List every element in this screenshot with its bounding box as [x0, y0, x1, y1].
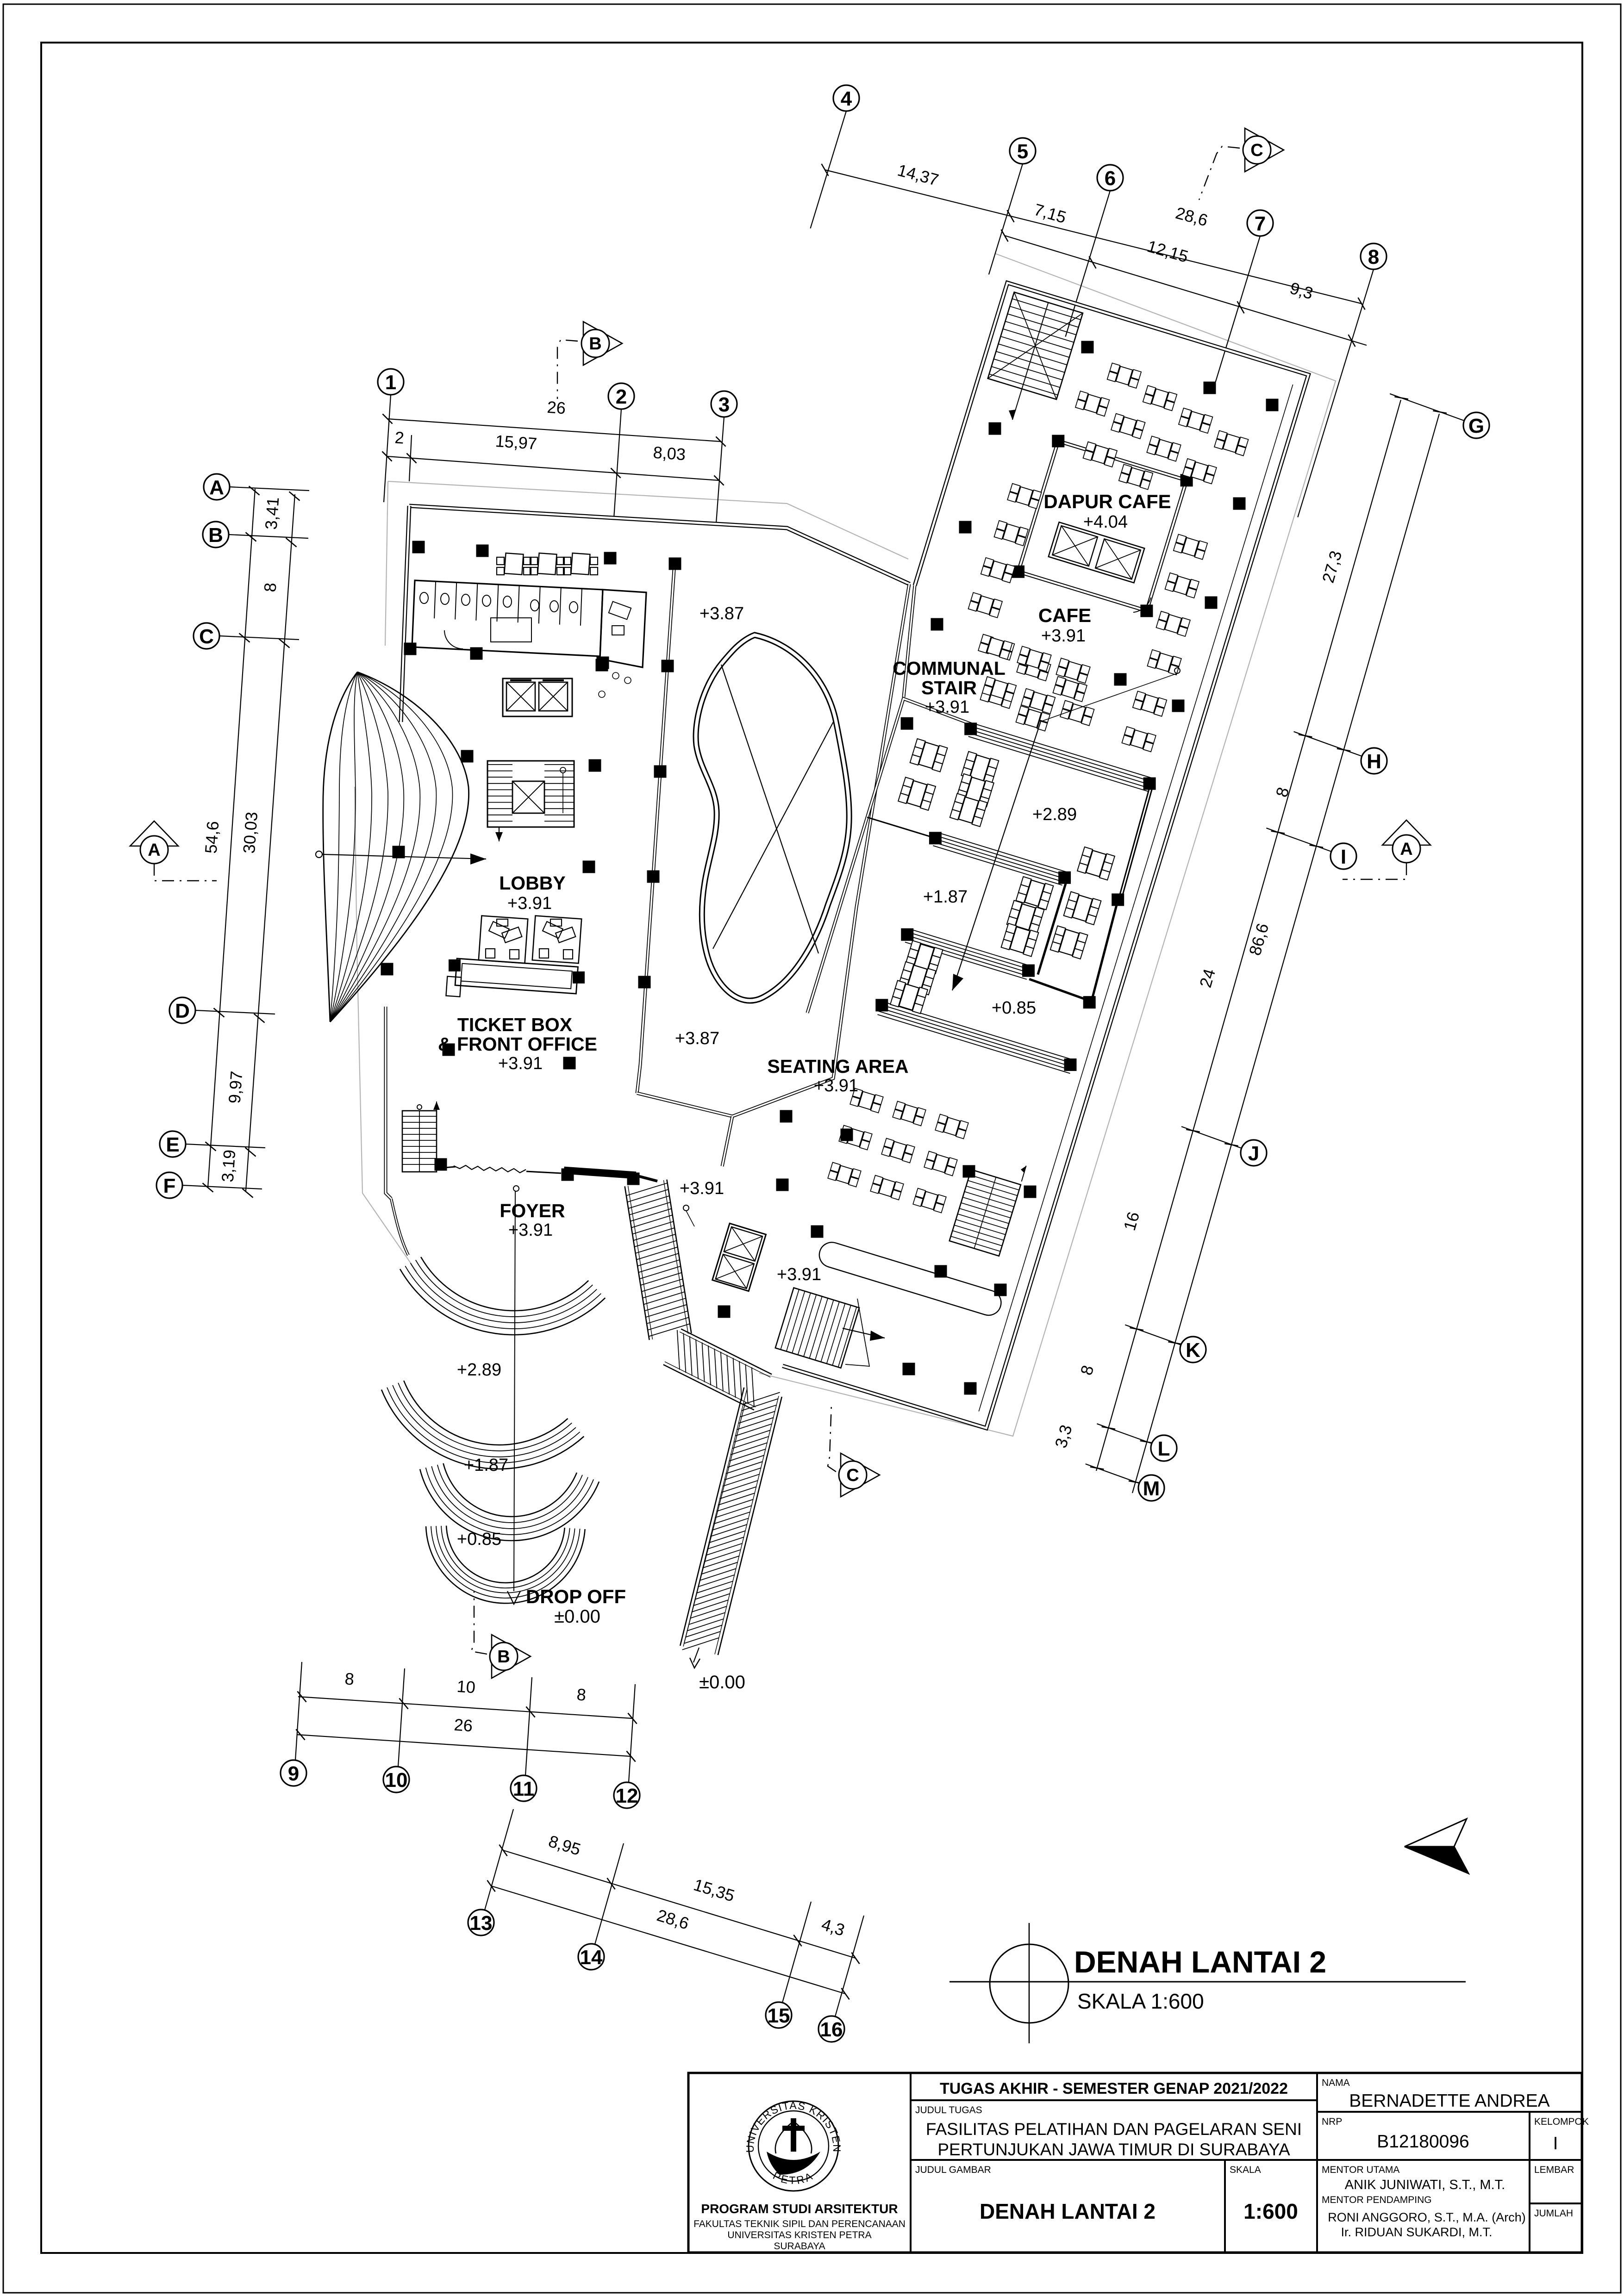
svg-text:15: 15 — [768, 2004, 790, 2027]
svg-text:C: C — [846, 1466, 859, 1485]
svg-text:10: 10 — [456, 1677, 476, 1697]
svg-text:2: 2 — [394, 428, 405, 447]
svg-text:6: 6 — [1105, 167, 1116, 190]
svg-text:A: A — [1400, 840, 1412, 859]
svg-text:+2.89: +2.89 — [457, 1360, 501, 1380]
svg-text:9,3: 9,3 — [1288, 278, 1315, 303]
svg-text:MENTOR UTAMA: MENTOR UTAMA — [1322, 2165, 1399, 2175]
svg-text:+0.85: +0.85 — [457, 1530, 501, 1549]
svg-text:8: 8 — [1077, 1363, 1098, 1377]
svg-text:PROGRAM STUDI ARSITEKTUR: PROGRAM STUDI ARSITEKTUR — [701, 2202, 898, 2216]
svg-text:DENAH LANTAI 2: DENAH LANTAI 2 — [980, 2199, 1156, 2223]
svg-text:11: 11 — [513, 1778, 535, 1800]
svg-text:FOYER: FOYER — [500, 1200, 565, 1221]
svg-text:C: C — [199, 625, 214, 648]
svg-text:28,6: 28,6 — [655, 1905, 691, 1933]
svg-text:4,3: 4,3 — [819, 1915, 847, 1940]
svg-text:B12180096: B12180096 — [1377, 2132, 1469, 2152]
svg-text:STAIR: STAIR — [921, 677, 977, 698]
svg-text:10: 10 — [385, 1769, 408, 1792]
svg-text:7: 7 — [1255, 212, 1266, 235]
svg-text:NAMA: NAMA — [1322, 2078, 1350, 2088]
svg-text:+2.89: +2.89 — [1032, 805, 1077, 824]
svg-text:JUMLAH: JUMLAH — [1534, 2208, 1573, 2219]
svg-text:KELOMPOK: KELOMPOK — [1534, 2116, 1589, 2127]
svg-text:15,97: 15,97 — [495, 431, 538, 453]
svg-text:TUGAS AKHIR - SEMESTER GENAP 2: TUGAS AKHIR - SEMESTER GENAP 2021/2022 — [940, 2080, 1288, 2097]
svg-text:54,6: 54,6 — [201, 821, 223, 854]
svg-text:TICKET BOX: TICKET BOX — [457, 1014, 572, 1035]
svg-text:4: 4 — [841, 87, 852, 110]
svg-text:+0.85: +0.85 — [992, 998, 1036, 1018]
svg-text:3,3: 3,3 — [1051, 1423, 1075, 1450]
svg-text:1: 1 — [385, 371, 396, 394]
svg-text:L: L — [1158, 1437, 1170, 1460]
svg-text:DROP OFF: DROP OFF — [526, 1586, 626, 1607]
svg-text:K: K — [1186, 1339, 1200, 1362]
svg-text:G: G — [1468, 415, 1484, 437]
svg-text:DAPUR CAFE: DAPUR CAFE — [1043, 491, 1171, 512]
svg-text:A: A — [209, 476, 224, 499]
svg-text:LOBBY: LOBBY — [499, 872, 566, 894]
svg-text:LEMBAR: LEMBAR — [1534, 2165, 1574, 2175]
svg-text:A: A — [148, 840, 160, 860]
svg-text:12,15: 12,15 — [1145, 236, 1190, 266]
svg-text:13: 13 — [470, 1912, 493, 1935]
svg-text:3: 3 — [718, 393, 730, 416]
svg-text:26: 26 — [546, 398, 566, 418]
svg-text:SURABAYA: SURABAYA — [774, 2241, 825, 2252]
svg-text:9,97: 9,97 — [225, 1070, 246, 1104]
svg-text:B: B — [208, 524, 223, 547]
svg-text:±0.00: ±0.00 — [554, 1606, 600, 1627]
svg-text:NRP: NRP — [1322, 2116, 1342, 2127]
svg-text:JUDUL TUGAS: JUDUL TUGAS — [915, 2105, 982, 2116]
svg-text:+1.87: +1.87 — [464, 1456, 508, 1475]
svg-text:I: I — [1553, 2134, 1558, 2153]
svg-text:16: 16 — [1120, 1210, 1143, 1233]
svg-text:26: 26 — [453, 1715, 473, 1736]
svg-text:3,41: 3,41 — [262, 497, 283, 530]
svg-text:8: 8 — [1272, 785, 1293, 799]
svg-text:J: J — [1248, 1142, 1259, 1165]
svg-text:I: I — [1341, 846, 1346, 868]
svg-text:30,03: 30,03 — [239, 811, 261, 854]
svg-text:27,3: 27,3 — [1318, 548, 1346, 585]
svg-text:B: B — [497, 1647, 510, 1667]
svg-text:24: 24 — [1196, 967, 1219, 990]
svg-text:M: M — [1143, 1477, 1160, 1500]
svg-text:8: 8 — [1368, 246, 1379, 268]
svg-text:E: E — [166, 1133, 179, 1156]
svg-text:+3.91: +3.91 — [680, 1179, 724, 1198]
svg-text:H: H — [1367, 750, 1381, 773]
svg-text:28,6: 28,6 — [1174, 203, 1210, 230]
svg-text:D: D — [175, 1000, 190, 1022]
svg-text:+3.91: +3.91 — [508, 1220, 553, 1240]
svg-text:RONI ANGGORO, S.T., M.A. (Arch: RONI ANGGORO, S.T., M.A. (Arch) — [1328, 2210, 1526, 2224]
svg-text:+3.87: +3.87 — [700, 604, 744, 623]
svg-text:±0.00: ±0.00 — [699, 1672, 745, 1692]
svg-text:2: 2 — [616, 386, 627, 408]
svg-text:CAFE: CAFE — [1038, 604, 1091, 626]
svg-text:DENAH LANTAI 2: DENAH LANTAI 2 — [1074, 1945, 1326, 1979]
svg-text:FASILITAS PELATIHAN DAN PAGELA: FASILITAS PELATIHAN DAN PAGELARAN SENI — [926, 2120, 1302, 2139]
svg-text:+1.87: +1.87 — [923, 887, 968, 907]
svg-text:SKALA: SKALA — [1230, 2165, 1261, 2175]
svg-text:UNIVERSITAS KRISTEN PETRA: UNIVERSITAS KRISTEN PETRA — [727, 2230, 871, 2240]
svg-text:8,03: 8,03 — [652, 443, 686, 464]
svg-text:MENTOR PENDAMPING: MENTOR PENDAMPING — [1322, 2195, 1432, 2205]
svg-text:PERTUNJUKAN JAWA TIMUR DI SURA: PERTUNJUKAN JAWA TIMUR DI SURABAYA — [937, 2140, 1290, 2159]
svg-text:F: F — [163, 1175, 176, 1197]
svg-text:SEATING AREA: SEATING AREA — [767, 1056, 908, 1077]
svg-text:86,6: 86,6 — [1245, 921, 1273, 958]
svg-text:1:600: 1:600 — [1243, 2199, 1298, 2223]
svg-text:ANIK JUNIWATI, S.T., M.T.: ANIK JUNIWATI, S.T., M.T. — [1345, 2178, 1505, 2192]
svg-text:+3.91: +3.91 — [498, 1054, 543, 1073]
svg-text:8,95: 8,95 — [546, 1831, 583, 1859]
svg-text:+3.87: +3.87 — [675, 1029, 719, 1048]
svg-text:BERNADETTE ANDREA: BERNADETTE ANDREA — [1349, 2091, 1549, 2111]
svg-text:C: C — [1250, 141, 1263, 160]
svg-text:9: 9 — [288, 1762, 299, 1785]
svg-text:Ir. RIDUAN SUKARDI, M.T.: Ir. RIDUAN SUKARDI, M.T. — [1341, 2225, 1492, 2239]
svg-text:14: 14 — [580, 1946, 603, 1969]
svg-text:15,35: 15,35 — [692, 1875, 737, 1905]
svg-text:5: 5 — [1017, 140, 1028, 163]
svg-text:14,37: 14,37 — [895, 160, 941, 189]
svg-text:8: 8 — [576, 1685, 587, 1704]
svg-text:B: B — [589, 334, 601, 354]
svg-text:+3.91: +3.91 — [507, 894, 552, 913]
svg-text:& FRONT OFFICE: & FRONT OFFICE — [438, 1033, 597, 1055]
svg-text:FAKULTAS TEKNIK SIPIL DAN PERE: FAKULTAS TEKNIK SIPIL DAN PERENCANAAN — [693, 2219, 906, 2229]
svg-text:+3.91: +3.91 — [777, 1265, 821, 1284]
svg-text:+3.91: +3.91 — [925, 697, 969, 717]
svg-text:3,19: 3,19 — [218, 1149, 239, 1183]
svg-text:+4.04: +4.04 — [1083, 512, 1128, 532]
svg-text:JUDUL GAMBAR: JUDUL GAMBAR — [915, 2165, 991, 2175]
svg-text:12: 12 — [616, 1785, 638, 1807]
svg-text:SKALA 1:600: SKALA 1:600 — [1077, 1989, 1204, 2013]
svg-text:8: 8 — [344, 1669, 355, 1688]
svg-text:16: 16 — [820, 2018, 843, 2041]
svg-text:8: 8 — [260, 582, 280, 593]
svg-text:+3.91: +3.91 — [1041, 626, 1086, 646]
svg-text:COMMUNAL: COMMUNAL — [893, 658, 1006, 679]
svg-text:+3.91: +3.91 — [814, 1076, 858, 1095]
